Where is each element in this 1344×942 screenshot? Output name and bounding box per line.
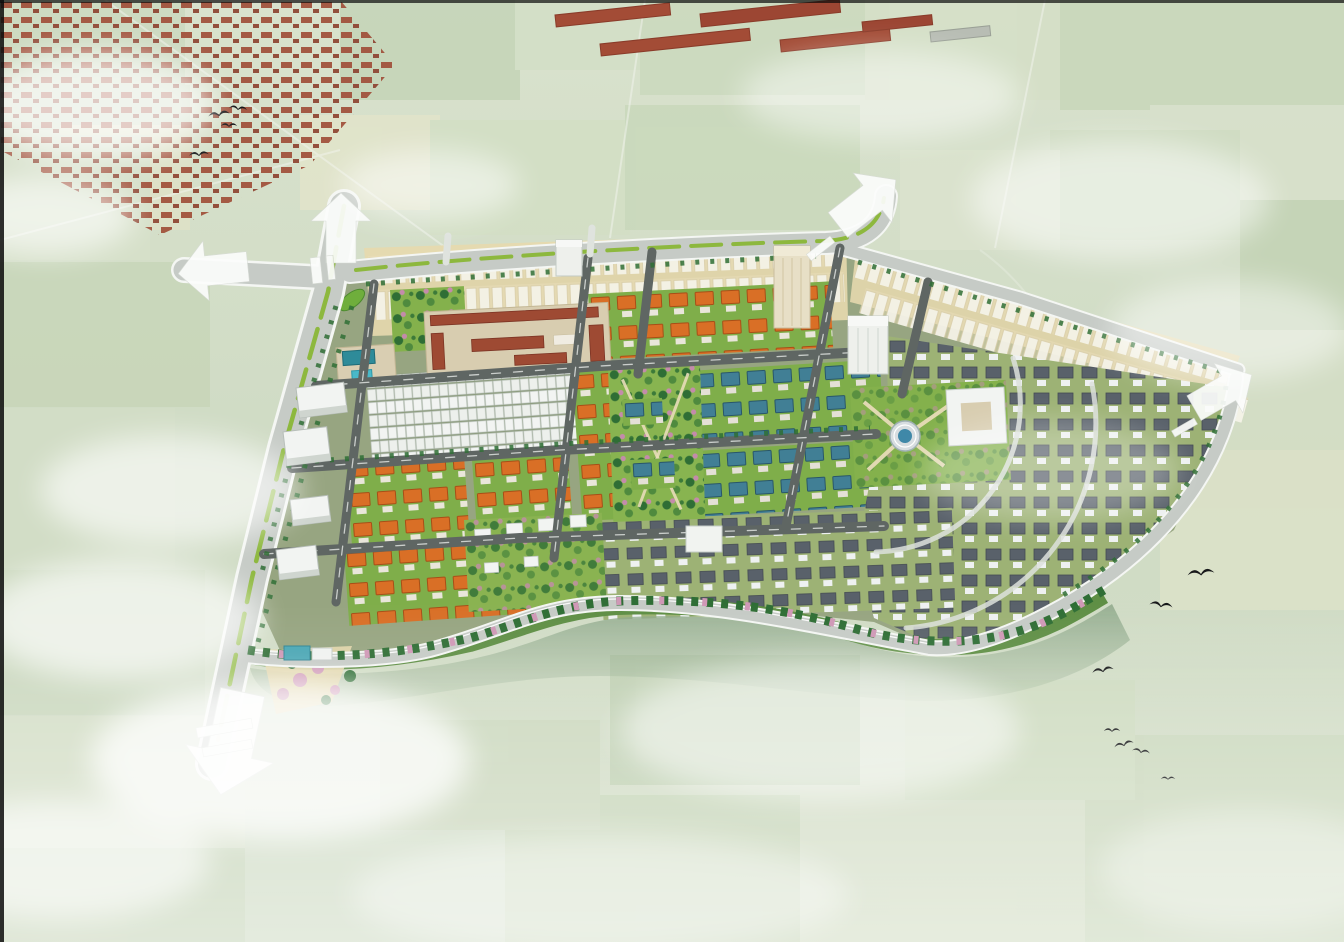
tower-beige — [774, 246, 810, 328]
masterplan-svg — [0, 0, 1344, 942]
tower-small — [556, 240, 582, 276]
tower-white — [848, 316, 888, 374]
aerial-render — [0, 0, 1344, 942]
top-edge-strip — [0, 0, 1344, 3]
left-edge-strip — [0, 0, 4, 942]
